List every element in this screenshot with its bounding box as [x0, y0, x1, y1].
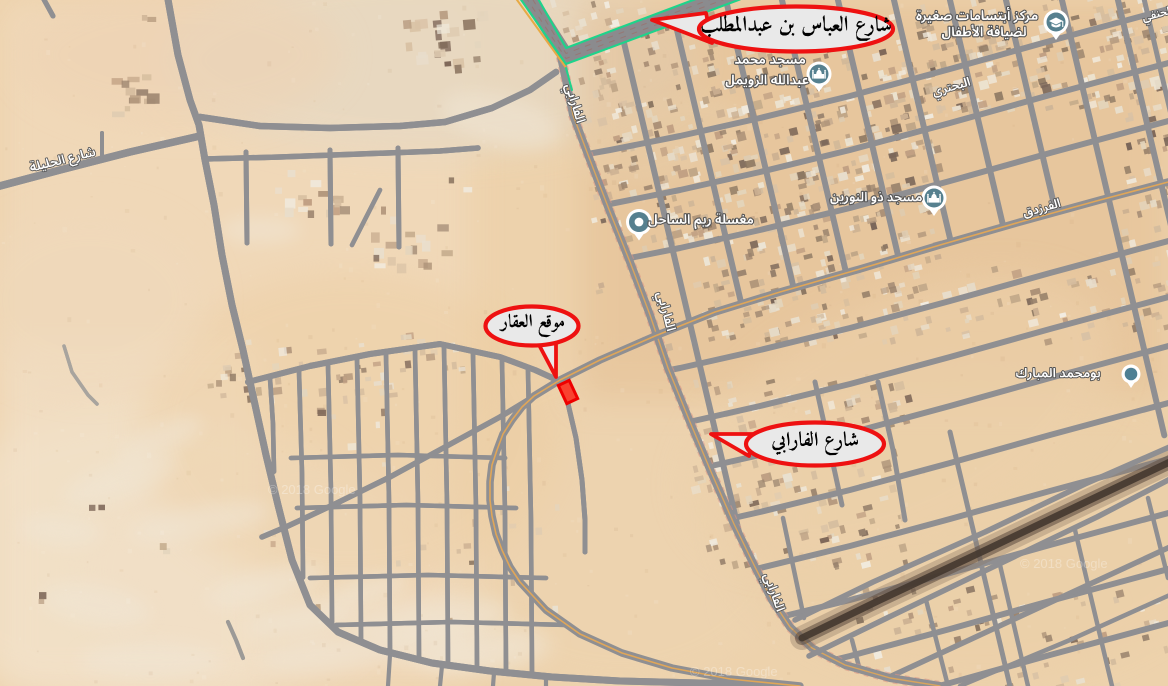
svg-text:© 2018 Google: © 2018 Google: [1020, 556, 1108, 571]
svg-text:© 2018 Google: © 2018 Google: [268, 482, 356, 497]
svg-text:© 2018 Google: © 2018 Google: [690, 664, 778, 679]
